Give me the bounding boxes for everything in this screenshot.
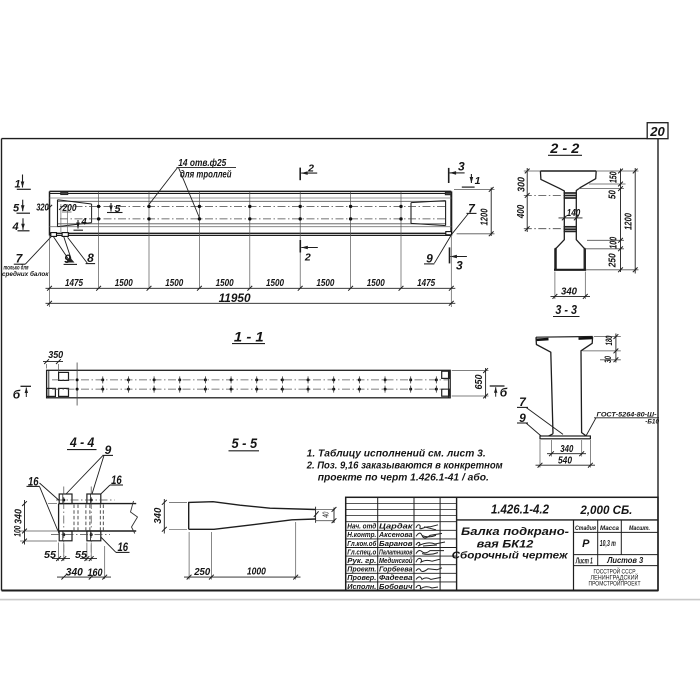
- svg-text:1: 1: [475, 175, 481, 187]
- svg-text:300: 300: [516, 177, 528, 192]
- svg-text:8: 8: [87, 251, 94, 265]
- svg-text:1. Таблицу исполнений см. лис: 1. Таблицу исполнений см. лист 3.: [307, 447, 486, 459]
- svg-text:1500: 1500: [316, 277, 334, 289]
- svg-text:30: 30: [603, 356, 614, 363]
- svg-text:Стадия: Стадия: [575, 525, 596, 532]
- svg-text:160: 160: [88, 567, 104, 579]
- svg-text:40: 40: [321, 512, 331, 518]
- svg-text:Р: Р: [582, 538, 590, 550]
- svg-text:Исполн.: Исполн.: [347, 583, 376, 591]
- svg-text:350: 350: [48, 350, 63, 361]
- svg-text:1500: 1500: [216, 277, 234, 289]
- svg-text:Листов 3: Листов 3: [606, 556, 643, 565]
- svg-text:4: 4: [11, 221, 18, 233]
- svg-text:11950: 11950: [219, 293, 252, 305]
- svg-text:340: 340: [13, 509, 25, 524]
- svg-text:Масшт.: Масшт.: [629, 525, 650, 532]
- svg-text:55: 55: [75, 549, 87, 561]
- svg-text:2: 2: [307, 163, 314, 175]
- svg-text:340: 340: [66, 566, 84, 578]
- svg-text:Гл.кон.об: Гл.кон.об: [347, 540, 377, 548]
- svg-text:2: 2: [304, 251, 311, 263]
- svg-text:250: 250: [608, 253, 619, 268]
- svg-text:5 - 5: 5 - 5: [231, 436, 257, 451]
- svg-text:50: 50: [608, 190, 619, 199]
- svg-text:100: 100: [13, 526, 23, 537]
- svg-text:1500: 1500: [367, 277, 385, 289]
- svg-text:1200: 1200: [478, 208, 490, 225]
- svg-text:650: 650: [473, 374, 485, 389]
- svg-text:Сборочный чертеж: Сборочный чертеж: [452, 550, 569, 562]
- svg-text:5: 5: [115, 203, 121, 215]
- svg-text:2 - 2: 2 - 2: [549, 141, 580, 156]
- svg-text:150: 150: [609, 171, 620, 183]
- svg-text:Н.контр.: Н.контр.: [347, 531, 376, 539]
- svg-text:Лист 1: Лист 1: [575, 556, 593, 565]
- svg-text:проекте по черт 1.426.1-41 / а: проекте по черт 1.426.1-41 / або.: [318, 472, 489, 484]
- svg-text:250: 250: [193, 566, 210, 578]
- svg-text:3: 3: [458, 160, 465, 174]
- svg-text:ПРОМСТРОЙПРОЕКТ: ПРОМСТРОЙПРОЕКТ: [589, 579, 641, 588]
- svg-text:Рук. гр.: Рук. гр.: [347, 557, 376, 565]
- svg-text:Масса: Масса: [600, 525, 620, 532]
- svg-text:1475: 1475: [65, 277, 83, 289]
- svg-text:400: 400: [515, 205, 527, 219]
- svg-text:55: 55: [44, 549, 56, 561]
- svg-text:1200: 1200: [623, 213, 635, 230]
- svg-text:1475: 1475: [417, 277, 435, 289]
- svg-text:320: 320: [36, 203, 49, 214]
- svg-text:4 - 4: 4 - 4: [69, 435, 95, 450]
- svg-text:4: 4: [80, 217, 87, 228]
- svg-text:20: 20: [649, 125, 665, 139]
- svg-text:3: 3: [456, 259, 463, 273]
- svg-text:1500: 1500: [115, 277, 133, 289]
- svg-text:средних балок: средних балок: [2, 270, 49, 278]
- svg-text:2. Поз. 9,16 заказываются в ко: 2. Поз. 9,16 заказываются в конкретном: [306, 460, 504, 471]
- svg-text:340: 340: [561, 285, 577, 297]
- svg-text:340: 340: [560, 444, 573, 455]
- svg-text:Проект.: Проект.: [347, 566, 376, 574]
- svg-text:Балка подкрано-: Балка подкрано-: [461, 526, 569, 538]
- svg-text:340: 340: [152, 508, 164, 524]
- svg-text:1500: 1500: [165, 277, 183, 289]
- svg-text:Провер.: Провер.: [347, 574, 376, 582]
- svg-text:Нач. отд: Нач. отд: [347, 523, 377, 531]
- svg-text:3 - 3: 3 - 3: [555, 303, 577, 317]
- svg-text:100: 100: [609, 236, 620, 248]
- svg-text:б: б: [13, 388, 21, 402]
- svg-text:180: 180: [604, 335, 615, 345]
- svg-text:для троллей: для троллей: [180, 169, 232, 180]
- svg-text:Гл.спец.о: Гл.спец.о: [347, 548, 377, 556]
- svg-text:1500: 1500: [266, 277, 284, 289]
- svg-text:1.426.1-4.2: 1.426.1-4.2: [491, 502, 549, 516]
- svg-text:Бобович: Бобович: [379, 582, 413, 591]
- svg-text:540: 540: [558, 456, 572, 467]
- svg-text:-Б10: -Б10: [645, 419, 659, 426]
- svg-text:1 - 1: 1 - 1: [234, 330, 264, 345]
- svg-text:1000: 1000: [247, 565, 266, 577]
- svg-text:10,3 т: 10,3 т: [600, 538, 616, 548]
- svg-text:2,000 СБ.: 2,000 СБ.: [579, 503, 632, 517]
- svg-text:б: б: [500, 385, 508, 399]
